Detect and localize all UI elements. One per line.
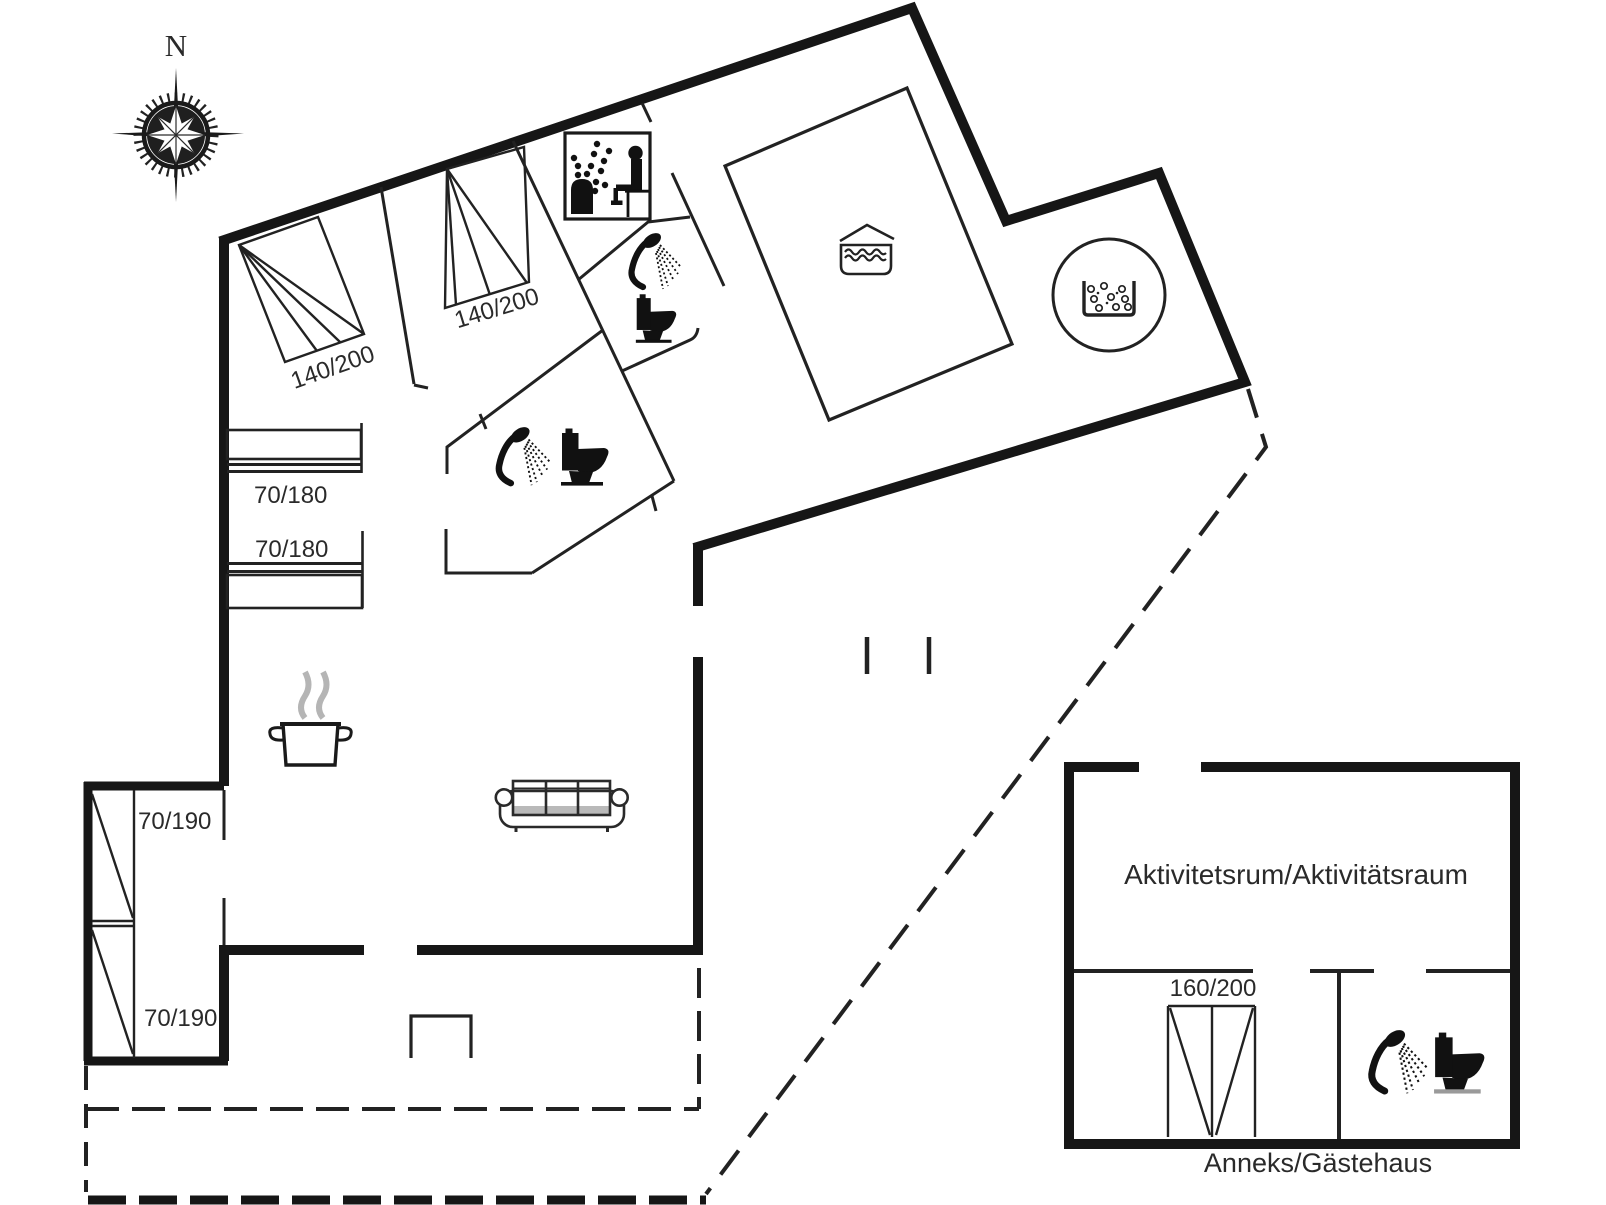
svg-text:160/200: 160/200 <box>1170 975 1257 1002</box>
svg-text:N: N <box>165 28 187 63</box>
svg-text:70/180: 70/180 <box>254 482 327 509</box>
svg-text:Aktivitetsrum/Aktivitätsraum: Aktivitetsrum/Aktivitätsraum <box>1124 859 1468 890</box>
svg-text:70/180: 70/180 <box>255 536 328 563</box>
svg-text:Anneks/Gästehaus: Anneks/Gästehaus <box>1204 1148 1432 1178</box>
svg-text:70/190: 70/190 <box>144 1005 217 1032</box>
svg-text:70/190: 70/190 <box>138 808 211 835</box>
